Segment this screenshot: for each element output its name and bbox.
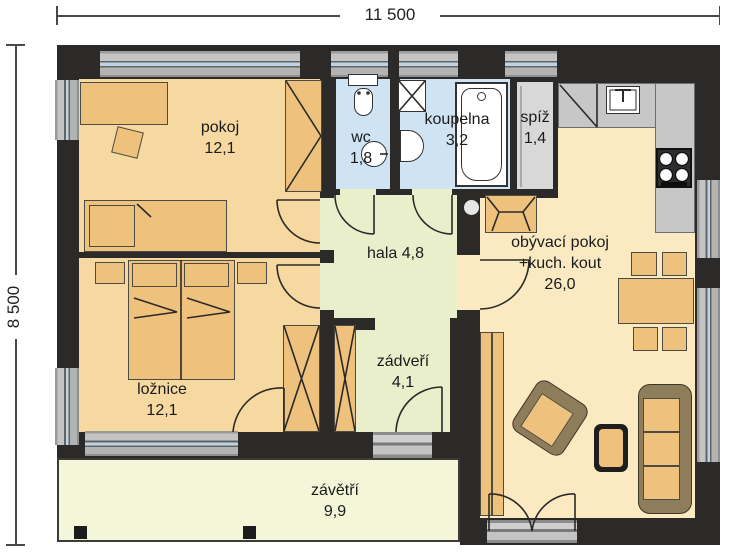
- room-name: koupelna: [392, 110, 522, 131]
- room-name: pokoj: [140, 118, 300, 139]
- room-label-loznice: ložnice 12,1: [92, 380, 232, 422]
- room-name: ložnice: [92, 380, 232, 401]
- room-area: 3,2: [392, 131, 522, 152]
- room-area: 9,9: [260, 502, 410, 523]
- room-label-wc: wc 1,8: [330, 128, 392, 170]
- room-label-hala: hala 4,8: [334, 244, 457, 265]
- room-label-koupelna: koupelna 3,2: [392, 110, 522, 152]
- room-name: wc: [330, 128, 392, 149]
- room-label-zavetri: závětří 9,9: [260, 481, 410, 523]
- room-name: hala: [367, 245, 397, 262]
- room-name: obývací pokoj: [480, 233, 640, 254]
- floor-plan-page: { "dimensions": { "width_label": "11 500…: [0, 0, 754, 558]
- room-name: spíž: [505, 108, 565, 129]
- room-area: 1,8: [330, 149, 392, 170]
- room-area: 26,0: [480, 275, 640, 296]
- plan-linework: [0, 0, 754, 558]
- floor-plan: 11 500 8 500: [0, 0, 754, 558]
- room-area: 1,4: [505, 129, 565, 150]
- room-area: 4,8: [402, 245, 424, 262]
- room-label-zadveri: zádveří 4,1: [353, 352, 453, 394]
- room-name: závětří: [260, 481, 410, 502]
- room-area: 12,1: [140, 139, 300, 160]
- room-name: zádveří: [353, 352, 453, 373]
- room-label-spiz: spíž 1,4: [505, 108, 565, 150]
- room-area: 12,1: [92, 401, 232, 422]
- room-name: +kuch. kout: [480, 254, 640, 275]
- room-label-obyvaci: obývací pokoj +kuch. kout 26,0: [480, 233, 640, 295]
- room-area: 4,1: [353, 373, 453, 394]
- room-label-pokoj: pokoj 12,1: [140, 118, 300, 160]
